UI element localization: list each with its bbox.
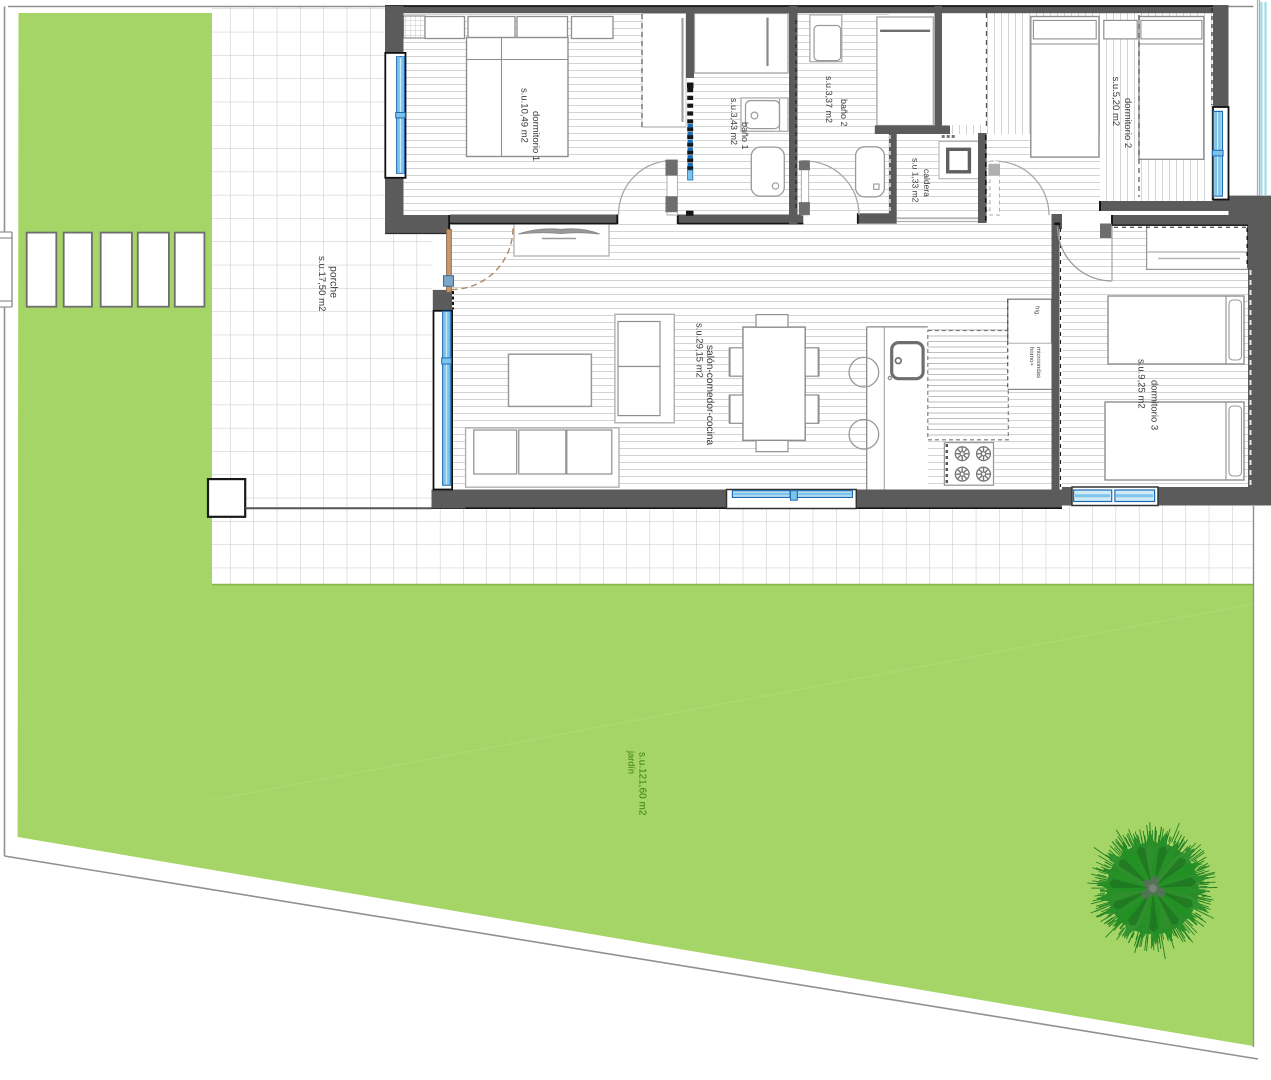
svg-text:s.u.17,50 m2: s.u.17,50 m2 <box>316 256 327 311</box>
svg-text:caldera: caldera <box>922 169 932 197</box>
svg-text:porche: porche <box>328 266 340 298</box>
svg-text:s.u.3,43 m2: s.u.3,43 m2 <box>729 98 739 145</box>
svg-text:dormitorio 1: dormitorio 1 <box>530 111 541 161</box>
svg-text:baño 2: baño 2 <box>839 99 849 127</box>
svg-text:s.u.5,20 m2: s.u.5,20 m2 <box>1110 77 1121 127</box>
svg-text:dormitorio 2: dormitorio 2 <box>1122 98 1133 148</box>
svg-text:s.u.29,15 m2: s.u.29,15 m2 <box>694 323 705 378</box>
svg-text:microondas: microondas <box>1035 347 1042 378</box>
svg-text:baño 1: baño 1 <box>740 122 750 150</box>
svg-text:frig.: frig. <box>1034 306 1041 316</box>
svg-text:s.u.3,37 m2: s.u.3,37 m2 <box>824 76 834 123</box>
svg-text:s.u.9,25 m2: s.u.9,25 m2 <box>1136 359 1147 409</box>
svg-text:s.u.121,60 m2: s.u.121,60 m2 <box>637 752 648 816</box>
svg-text:s.u.10,49 m2: s.u.10,49 m2 <box>519 88 530 143</box>
svg-text:horno+: horno+ <box>1028 347 1035 366</box>
svg-text:salón-comedor-cocina: salón-comedor-cocina <box>704 345 715 446</box>
svg-text:dormitorio 3: dormitorio 3 <box>1149 380 1160 430</box>
svg-text:s.u 1,33 m2: s.u 1,33 m2 <box>911 158 921 203</box>
svg-text:jardín: jardín <box>627 750 637 774</box>
